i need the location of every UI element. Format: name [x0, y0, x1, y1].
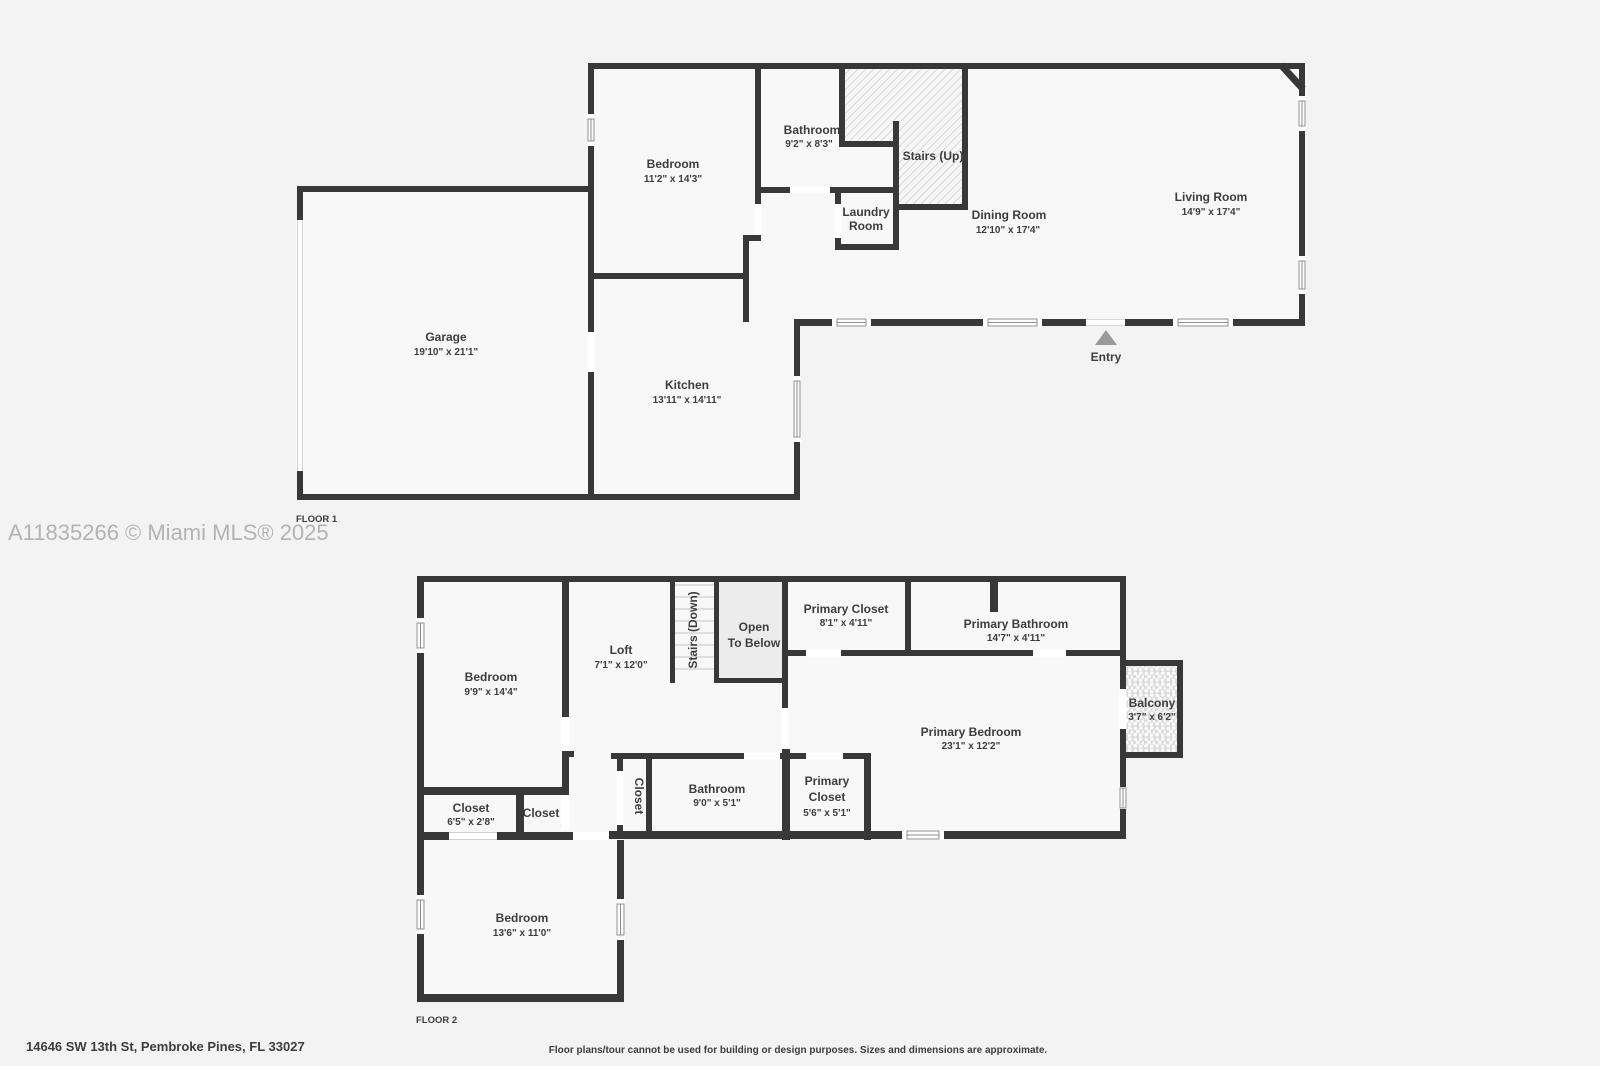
svg-text:14'9" x 17'4": 14'9" x 17'4" — [1182, 207, 1241, 218]
svg-text:12'10" x 17'4": 12'10" x 17'4" — [976, 225, 1041, 236]
svg-text:Room: Room — [849, 219, 883, 233]
svg-text:Closet: Closet — [453, 801, 490, 815]
svg-text:11'2" x 14'3": 11'2" x 14'3" — [644, 174, 702, 185]
svg-text:Closet: Closet — [523, 806, 560, 820]
svg-text:14646 SW 13th St, Pembroke Pin: 14646 SW 13th St, Pembroke Pines, FL 330… — [26, 1039, 305, 1054]
svg-text:9'9" x 14'4": 9'9" x 14'4" — [464, 687, 517, 698]
svg-text:5'6" x 5'1": 5'6" x 5'1" — [803, 808, 851, 819]
svg-text:Kitchen: Kitchen — [665, 378, 709, 392]
svg-text:Bathroom: Bathroom — [689, 782, 746, 796]
svg-text:Bathroom: Bathroom — [784, 123, 841, 137]
svg-text:Primary Closet: Primary Closet — [804, 602, 889, 616]
svg-text:Primary: Primary — [805, 774, 850, 788]
svg-text:7'1" x 12'0": 7'1" x 12'0" — [594, 660, 647, 671]
svg-text:To Below: To Below — [728, 636, 781, 650]
svg-text:23'1" x 12'2": 23'1" x 12'2" — [942, 741, 1001, 752]
svg-text:Loft: Loft — [610, 643, 633, 657]
svg-text:19'10" x 21'1": 19'10" x 21'1" — [414, 347, 479, 358]
svg-text:13'6" x 11'0": 13'6" x 11'0" — [493, 928, 551, 939]
svg-text:Bedroom: Bedroom — [465, 670, 518, 684]
svg-text:Open: Open — [739, 620, 770, 634]
svg-text:Stairs (Up): Stairs (Up) — [903, 149, 964, 163]
svg-text:Garage: Garage — [425, 330, 467, 344]
svg-text:Floor plans/tour cannot be use: Floor plans/tour cannot be used for buil… — [549, 1045, 1048, 1056]
svg-text:Primary Bathroom: Primary Bathroom — [964, 617, 1069, 631]
svg-text:8'1" x 4'11": 8'1" x 4'11" — [820, 618, 873, 629]
svg-text:Bedroom: Bedroom — [496, 911, 549, 925]
svg-text:Stairs (Down): Stairs (Down) — [686, 591, 700, 668]
svg-text:6'5" x 2'8": 6'5" x 2'8" — [447, 817, 495, 828]
svg-text:Closet: Closet — [632, 778, 646, 815]
svg-text:9'2" x 8'3": 9'2" x 8'3" — [785, 139, 833, 150]
svg-text:Entry: Entry — [1091, 350, 1122, 364]
svg-text:3'7" x 6'2": 3'7" x 6'2" — [1128, 712, 1176, 723]
svg-text:Laundry: Laundry — [842, 205, 890, 219]
svg-text:Primary Bedroom: Primary Bedroom — [921, 725, 1022, 739]
svg-text:Living Room: Living Room — [1175, 190, 1248, 204]
svg-text:Bedroom: Bedroom — [647, 157, 700, 171]
svg-text:A11835266 © Miami MLS® 2025: A11835266 © Miami MLS® 2025 — [8, 520, 329, 545]
svg-text:13'11" x 14'11": 13'11" x 14'11" — [653, 395, 722, 406]
svg-text:14'7" x 4'11": 14'7" x 4'11" — [987, 633, 1045, 644]
svg-text:Balcony: Balcony — [1129, 696, 1176, 710]
svg-text:FLOOR 2: FLOOR 2 — [416, 1015, 457, 1026]
svg-text:Dining Room: Dining Room — [972, 208, 1047, 222]
svg-text:9'0" x 5'1": 9'0" x 5'1" — [693, 798, 741, 809]
svg-text:Closet: Closet — [809, 790, 846, 804]
